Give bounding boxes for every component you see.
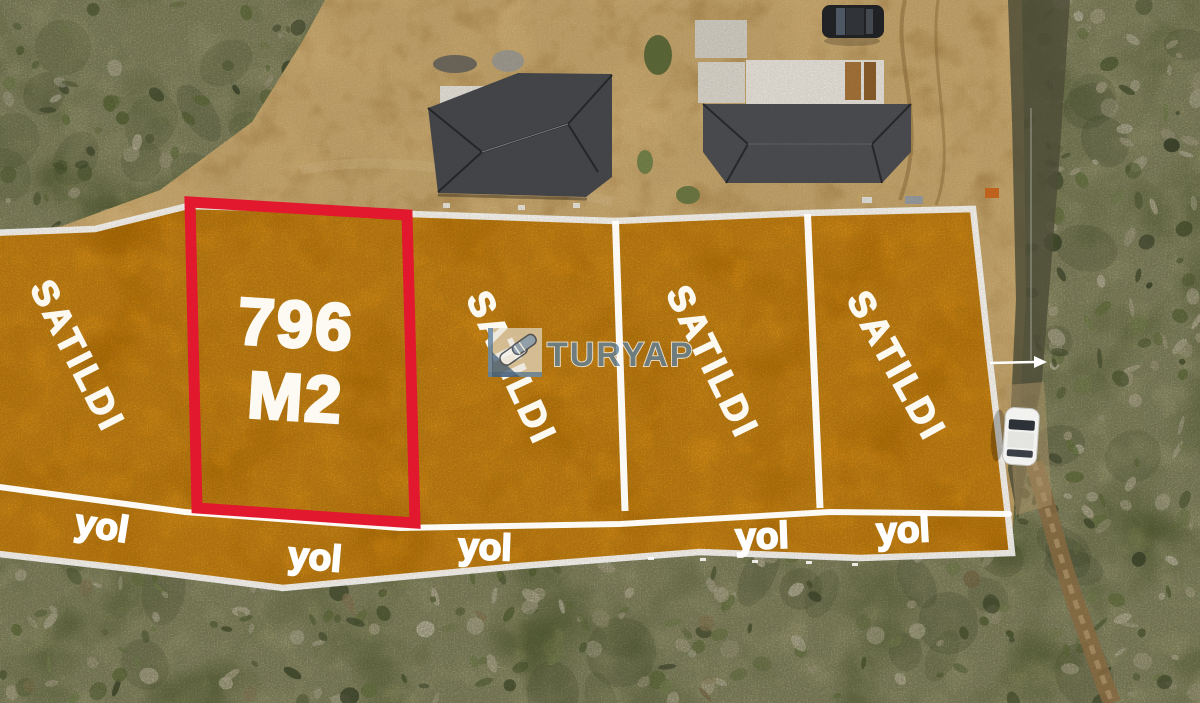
white-car	[989, 406, 1040, 466]
aerial-photo-canvas: SATILDI SATILDI SATILDI SATILDI 796 M2 y…	[0, 0, 1200, 703]
white-car-windshield	[1008, 419, 1035, 431]
brand-wordmark: TURYAP	[547, 336, 694, 374]
survey-arrow	[990, 362, 1034, 363]
area-label: 796 M2	[231, 284, 356, 438]
area-label-line1: 796	[236, 284, 356, 365]
handshake-icon	[488, 328, 542, 377]
road-label-4: yol	[735, 515, 790, 558]
aerial-photo: SATILDI SATILDI SATILDI SATILDI 796 M2 y…	[0, 0, 1200, 703]
road-label-2: yol	[287, 534, 344, 580]
area-label-line2: M2	[246, 357, 346, 437]
road-label-1: yol	[72, 502, 131, 551]
road-label-3: yol	[458, 526, 513, 569]
white-car-roof	[1007, 431, 1034, 449]
road-label-5: yol	[875, 508, 931, 552]
turyap-watermark: TURYAP	[488, 328, 694, 377]
